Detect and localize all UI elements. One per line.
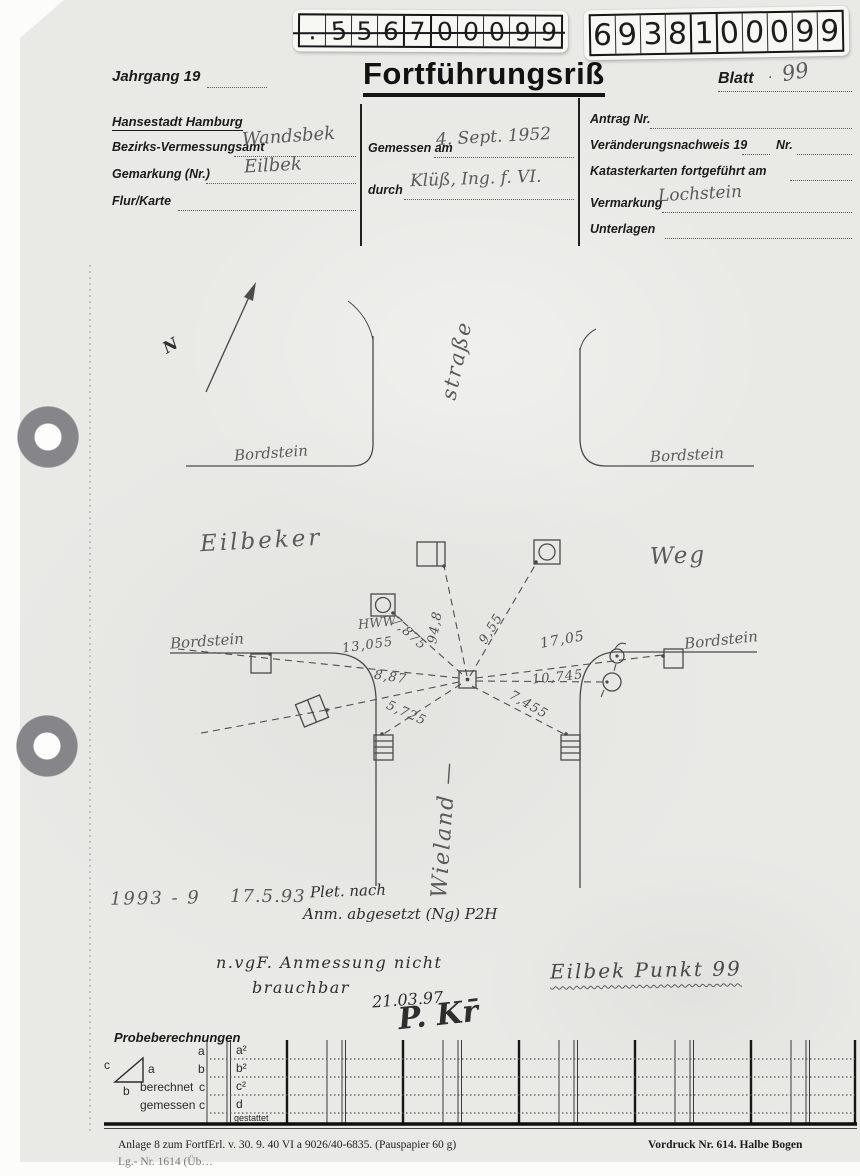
probe-row-a: a: [198, 1044, 205, 1058]
probe-grid: [104, 1040, 857, 1129]
scanned-survey-document: . 5 5 6 7 0 0 0 9 9 6 9 3 8 1 0 0 0 9 9 …: [0, 0, 860, 1176]
triangle-label-a: a: [148, 1062, 155, 1076]
marker-square-divided: [417, 542, 445, 566]
marker-grate-right: [561, 732, 580, 760]
probe-f-b2: b²: [236, 1061, 247, 1075]
footer-right: Vordruck Nr. 614. Halbe Bogen: [648, 1139, 802, 1151]
probe-row-b: b: [198, 1062, 205, 1076]
probe-f-c2: c²: [236, 1079, 246, 1093]
footer-left: Anlage 8 zum FortfErl. v. 30. 9. 40 VI a…: [118, 1139, 456, 1151]
marker-grate-left: [374, 732, 393, 760]
probe-heading: Probeberechnungen: [114, 1030, 240, 1045]
probe-f-a2: a²: [236, 1043, 247, 1057]
probe-berechnet-label: berechnet: [140, 1080, 193, 1094]
curb-label-top-right: Bordstein: [650, 444, 725, 466]
probe-row-c2: c: [199, 1098, 205, 1112]
note-date: 17.5.93: [230, 886, 306, 907]
note-year: 1993 - 9: [110, 887, 201, 910]
probe-gestattet: gestattet: [234, 1113, 269, 1123]
remark-line1: n.vgF. Anmessung nicht: [216, 953, 442, 972]
point-label: Eilbek Punkt 99: [550, 956, 742, 983]
street-name-right: Weg: [650, 542, 707, 570]
footer-cut-line: Lg.- Nr. 1614 (Üb…: [118, 1156, 213, 1168]
probe-gemessen-label: gemessen: [140, 1098, 195, 1112]
note-line1: Plet. nach: [310, 881, 387, 902]
triangle-label-b: b: [123, 1084, 130, 1098]
north-arrow: [206, 282, 256, 392]
probe-row-c1: c: [199, 1080, 205, 1094]
probe-f-d: d: [236, 1097, 243, 1111]
probe-triangle: [115, 1058, 143, 1082]
note-line2: Anm. abgesetzt (Ng) P2H: [303, 905, 498, 923]
survey-symbols: [251, 540, 683, 760]
remark-line2: brauchbar: [252, 978, 350, 997]
curb-lines: [170, 301, 757, 888]
triangle-label-c: c: [104, 1058, 110, 1072]
